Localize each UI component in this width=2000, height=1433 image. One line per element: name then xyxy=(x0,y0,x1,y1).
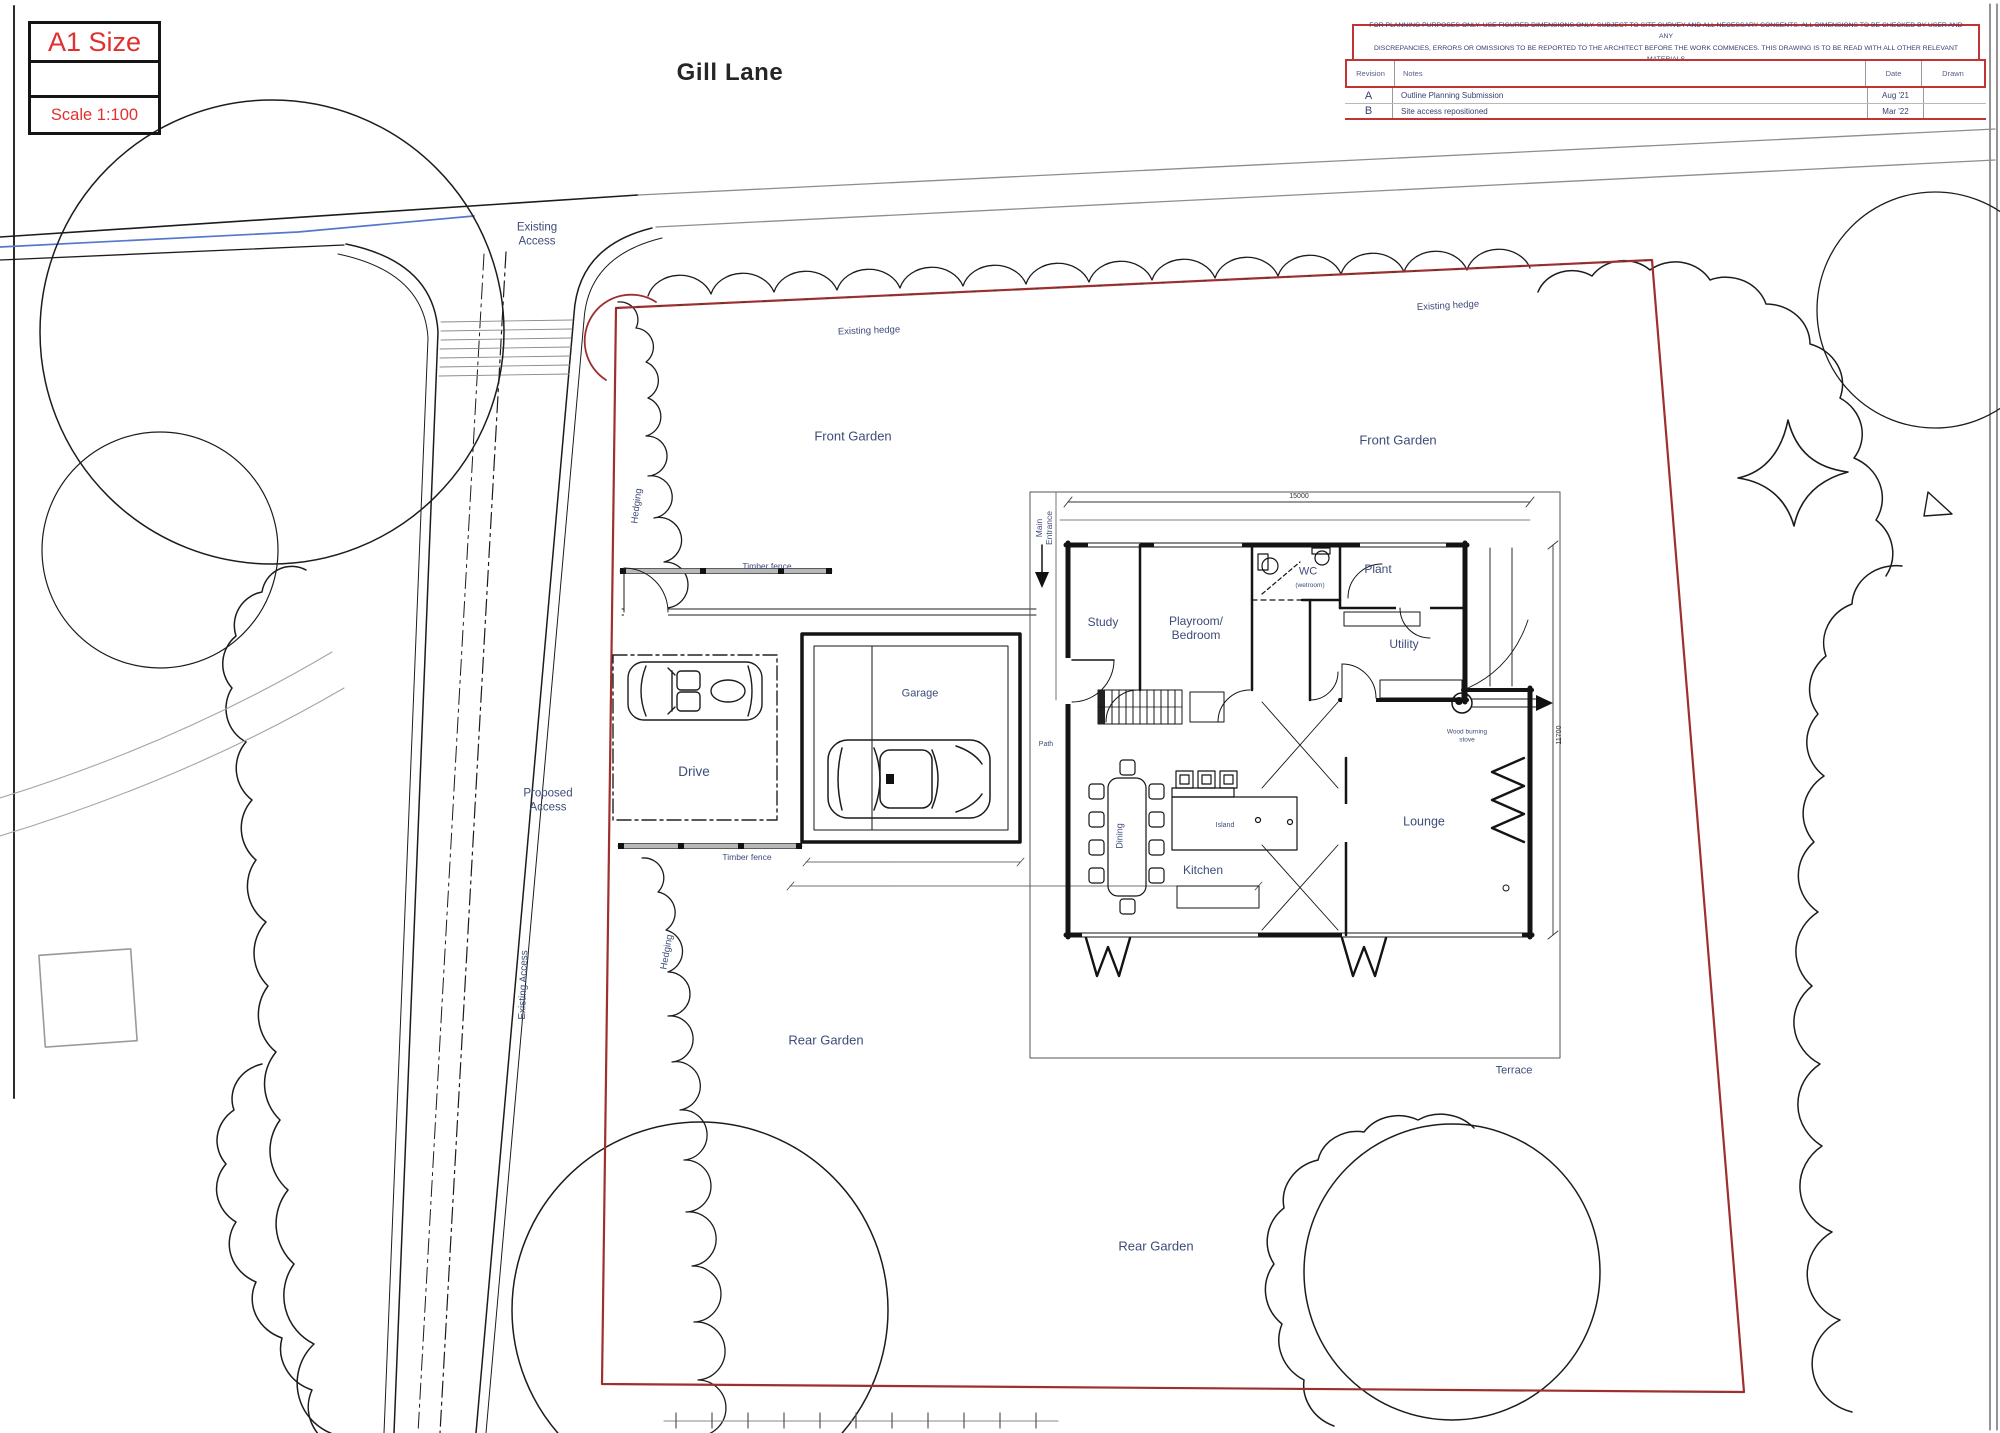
label-study: Study xyxy=(1088,615,1119,629)
stairs xyxy=(1098,690,1182,724)
label-wc-note: (wetroom) xyxy=(1295,582,1324,590)
paper-size-box: A1 Size xyxy=(28,21,161,63)
label-rear-garden-west: Rear Garden xyxy=(788,1032,863,1047)
label-plant: Plant xyxy=(1364,562,1391,576)
hedging-south xyxy=(642,858,726,1433)
label-front-garden-east: Front Garden xyxy=(1359,432,1436,447)
label-existing-access-top: Existing Access xyxy=(502,221,572,248)
trees-right-edge xyxy=(1794,566,1902,1412)
hedges xyxy=(618,249,1530,1433)
label-lounge: Lounge xyxy=(1403,815,1445,830)
sheet-frame xyxy=(14,4,1997,1430)
label-wood-stove: Wood burning stove xyxy=(1445,728,1489,743)
label-timber-fence-south: Timber fence xyxy=(722,852,771,862)
label-front-garden-west: Front Garden xyxy=(814,428,891,443)
substation-square xyxy=(39,949,137,1047)
rev-b-notes: Site access repositioned xyxy=(1393,104,1868,118)
house-plan xyxy=(1035,540,1553,976)
label-wc: WC xyxy=(1299,566,1317,579)
garage-outline xyxy=(802,634,1020,842)
label-kitchen: Kitchen xyxy=(1183,863,1223,877)
kitchen-counter xyxy=(1177,886,1259,908)
disclaimer-box: FOR PLANNING PURPOSES ONLY. USE FIGURED … xyxy=(1352,24,1980,61)
rev-b-letter: B xyxy=(1345,104,1393,118)
label-timber-fence-north: Timber fence xyxy=(742,561,791,571)
revision-table-header: Revision Notes Date Drawn xyxy=(1345,59,1986,88)
dimension-lines xyxy=(1064,497,1558,939)
fold-box xyxy=(28,60,161,98)
rev-header-revision: Revision xyxy=(1347,61,1395,86)
label-island: Island xyxy=(1216,822,1235,830)
road-gill-lane xyxy=(0,129,1995,260)
misc-gray xyxy=(0,652,1058,1428)
drawing-sheet: A1 Size Scale 1:100 Gill Lane FOR PLANNI… xyxy=(0,0,2000,1433)
rooflight-marks xyxy=(1262,702,1338,930)
closet xyxy=(1190,692,1224,722)
revision-table: Revision Notes Date Drawn A Outline Plan… xyxy=(1345,59,1986,120)
label-rear-garden-south: Rear Garden xyxy=(1118,1238,1193,1253)
label-terrace: Terrace xyxy=(1496,1065,1533,1078)
star-shrub xyxy=(1738,420,1848,526)
wc-fixtures xyxy=(1252,548,1330,600)
rev-b-date: Mar '22 xyxy=(1868,104,1924,118)
label-drive: Drive xyxy=(678,764,710,780)
scale-box: Scale 1:100 xyxy=(28,95,161,135)
entrance-door xyxy=(1063,658,1114,704)
label-playroom: Playroom/ Bedroom xyxy=(1158,614,1234,642)
trees-top-right xyxy=(1538,261,1893,576)
label-existing-access-side: Existing Access xyxy=(517,950,531,1020)
rev-header-drawn: Drawn xyxy=(1922,69,1984,78)
label-proposed-access: Proposed Access xyxy=(516,787,580,814)
dimension-house-width: 15000 xyxy=(1289,493,1308,501)
window-symbols xyxy=(1086,758,1524,976)
tree-bottom-right xyxy=(1304,1124,1600,1420)
scale-label: Scale 1:100 xyxy=(51,106,138,125)
car-on-drive xyxy=(628,662,762,720)
shrubs-bottom-left xyxy=(217,1064,334,1433)
drive-outline xyxy=(613,655,777,820)
label-existing-hedge-west: Existing hedge xyxy=(838,324,901,337)
disclaimer-line-1: FOR PLANNING PURPOSES ONLY. USE FIGURED … xyxy=(1362,20,1970,42)
paper-size-label: A1 Size xyxy=(48,27,141,58)
dimension-house-depth: 11700 xyxy=(1556,726,1564,745)
shrub-line-west xyxy=(223,566,340,1433)
revision-row-b: B Site access repositioned Mar '22 xyxy=(1345,104,1986,120)
front-building-line xyxy=(622,568,1036,618)
road-existing-access xyxy=(338,228,662,1433)
kitchen-island xyxy=(1172,771,1297,850)
label-dining: Dining xyxy=(1115,823,1126,849)
drawing-title: Gill Lane xyxy=(677,59,784,87)
rev-header-notes: Notes xyxy=(1395,61,1866,86)
dining-table xyxy=(1089,760,1164,914)
rev-a-notes: Outline Planning Submission xyxy=(1393,88,1868,103)
rev-header-date: Date xyxy=(1866,61,1922,86)
site-boundary-red xyxy=(585,260,1744,1392)
label-garage: Garage xyxy=(902,688,939,701)
junction-hatching xyxy=(439,320,572,376)
revision-row-a: A Outline Planning Submission Aug '21 xyxy=(1345,88,1986,104)
rev-a-date: Aug '21 xyxy=(1868,88,1924,103)
paving-outline xyxy=(1030,492,1560,1058)
rev-a-letter: A xyxy=(1345,88,1393,103)
label-utility: Utility xyxy=(1389,637,1418,651)
label-main-entrance: Main Entrance xyxy=(1034,502,1054,554)
car-in-garage xyxy=(828,740,990,818)
label-path: Path xyxy=(1039,741,1053,749)
external-steps xyxy=(1468,548,1528,688)
hedging-north xyxy=(618,302,688,608)
site-plan-drawing xyxy=(0,0,2000,1433)
